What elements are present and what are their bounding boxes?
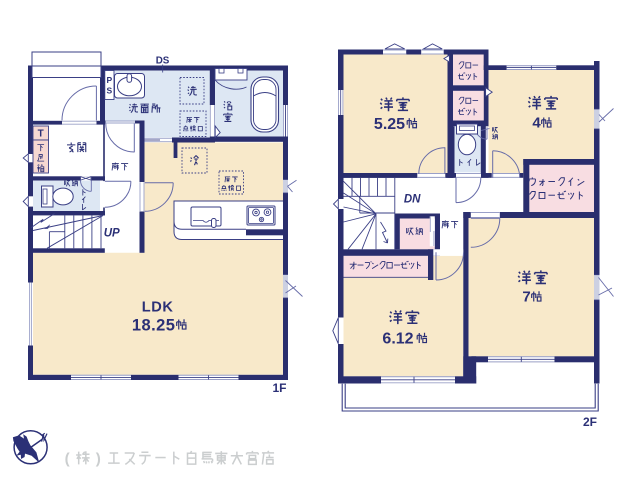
svg-text:DN: DN (404, 194, 421, 206)
svg-text:18.25: 18.25 (132, 316, 176, 334)
svg-text:S: S (106, 86, 112, 96)
svg-text:T: T (38, 129, 44, 140)
svg-text:): ) (96, 451, 101, 468)
svg-text:2F: 2F (583, 415, 597, 429)
svg-text:1F: 1F (272, 381, 286, 395)
svg-text:P: P (106, 75, 112, 85)
svg-text:LDK: LDK (142, 299, 174, 315)
svg-text:(: ( (65, 451, 71, 468)
svg-text:6.12: 6.12 (382, 331, 413, 348)
svg-text:4: 4 (532, 115, 541, 132)
svg-text:5.25: 5.25 (374, 116, 405, 133)
svg-text:7: 7 (522, 289, 530, 306)
svg-text:UP: UP (104, 227, 120, 239)
